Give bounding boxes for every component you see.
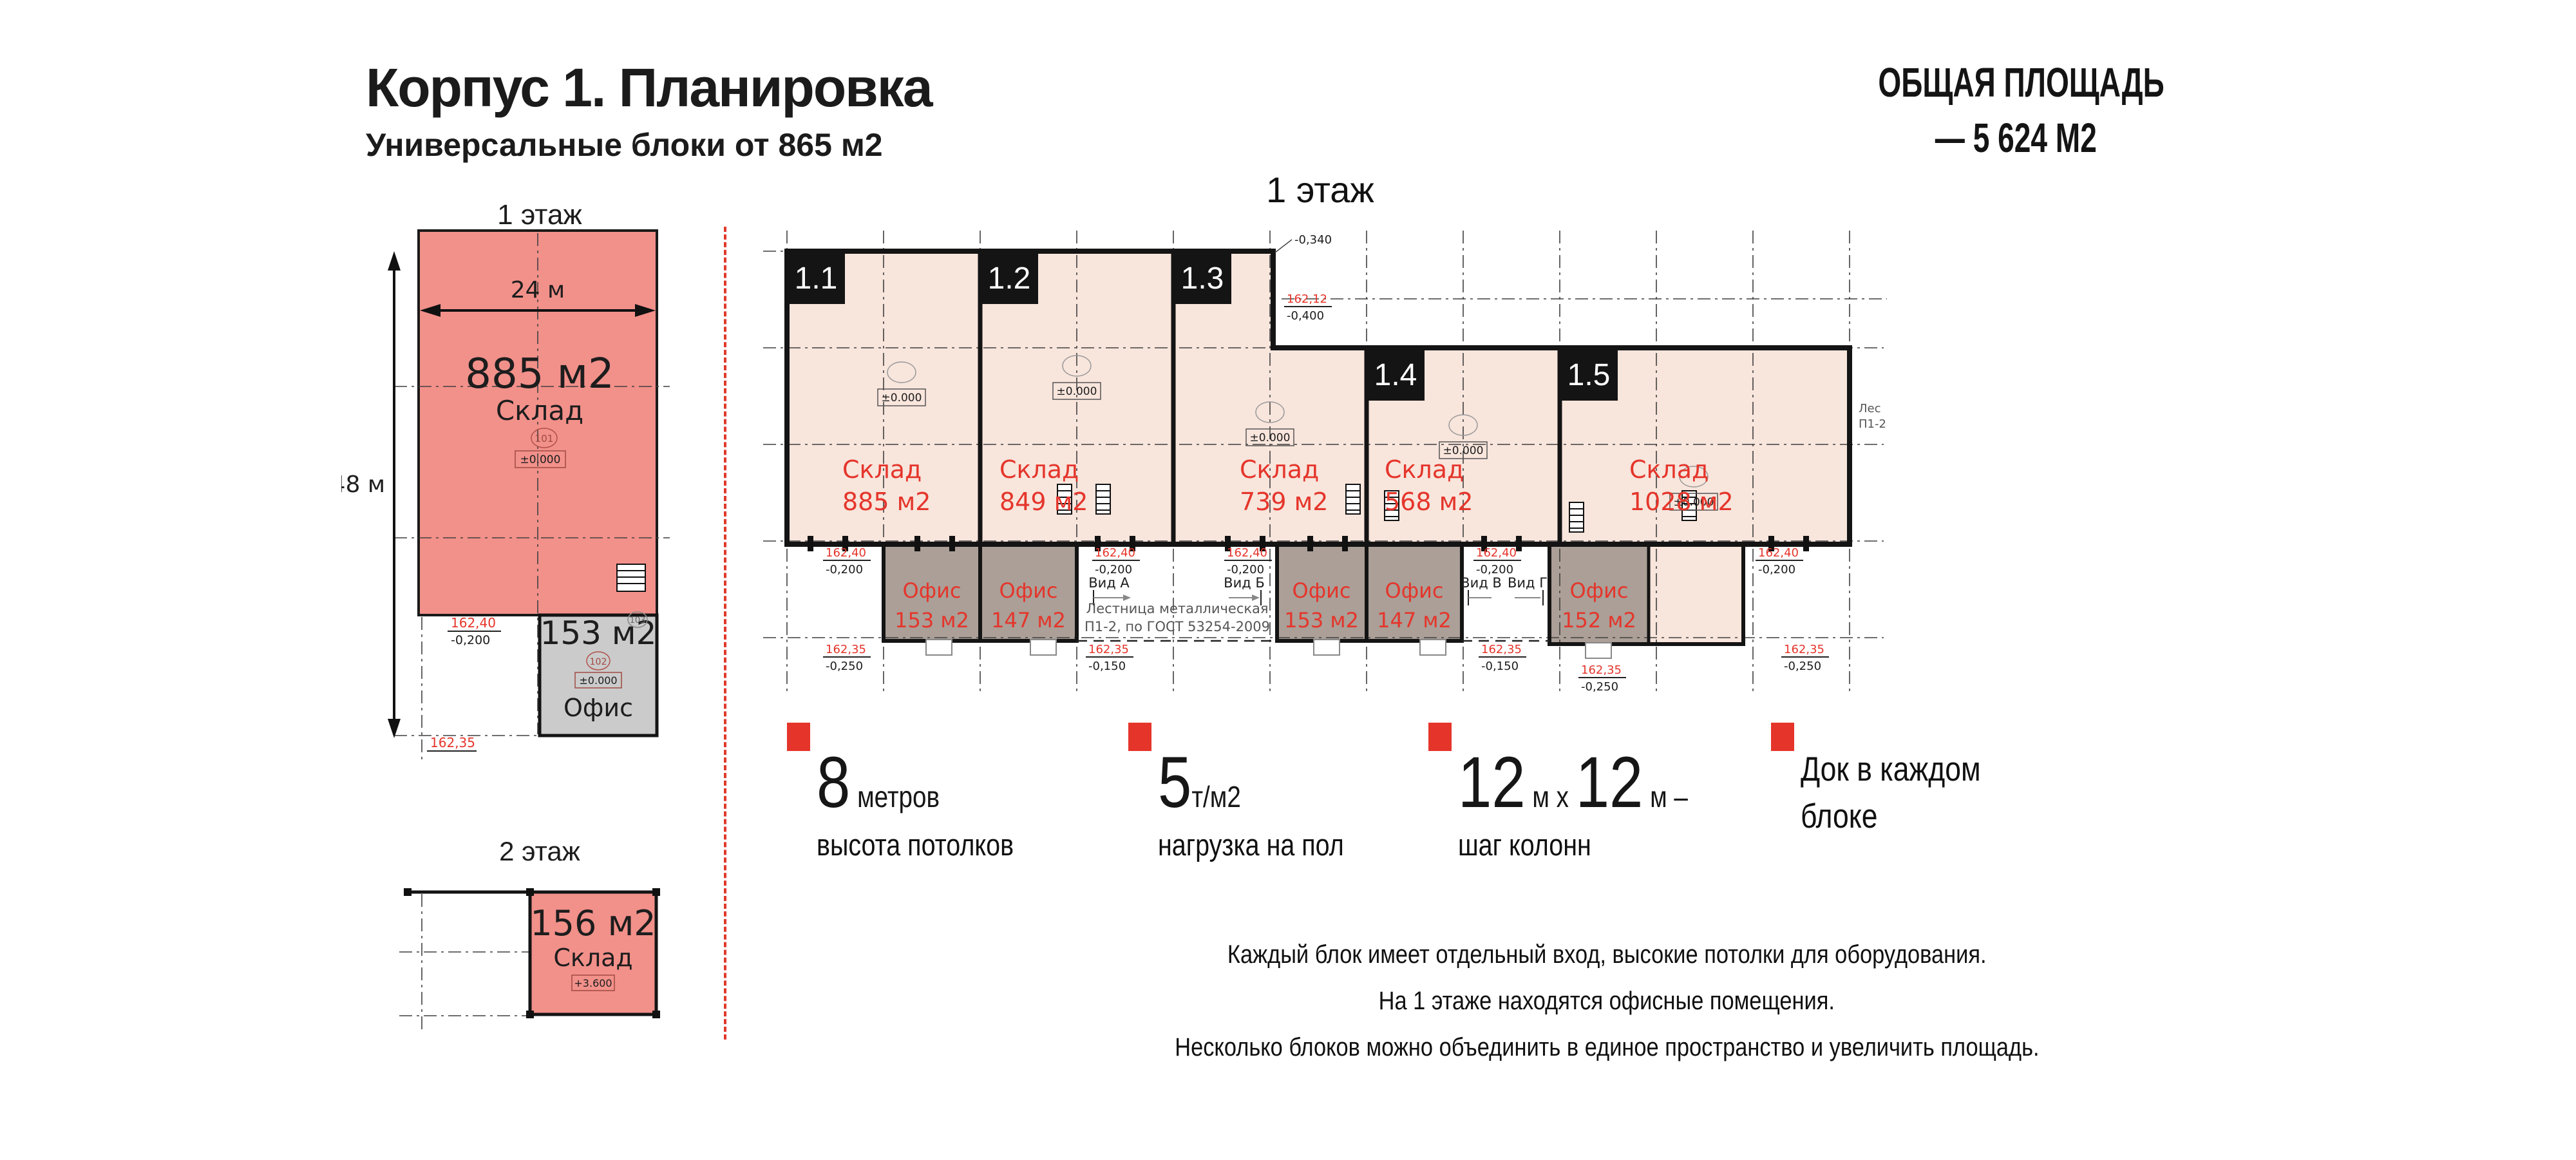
em1d: -0,200 [826, 563, 863, 576]
f2-corner-4 [652, 1011, 660, 1018]
footer-notes: Каждый блок имеет отдельный вход, высоки… [953, 935, 2260, 1074]
block13-room: Склад [1240, 455, 1319, 484]
dim-24m-label: 24 м [511, 277, 565, 303]
feature2-caption: нагрузка на пол [1158, 827, 1344, 862]
em3d: -0,200 [1227, 563, 1264, 576]
red-square-icon [787, 723, 810, 751]
f2-corner-1 [526, 888, 534, 896]
block12-area: 849 м2 [999, 488, 1088, 516]
office4-room: Офис [1385, 578, 1444, 603]
floorplan-slide: { "header": { "title": "Корпус 1. Планир… [0, 0, 2576, 1160]
em10d: -0,250 [1784, 660, 1821, 673]
em11d: -0,400 [1287, 309, 1324, 323]
total-area-caption: ОБЩАЯ ПЛОЩАДЬ [1878, 62, 2164, 103]
em4v: 162,40 [1476, 546, 1517, 560]
view-a: Вид А [1088, 575, 1130, 591]
em8v: 162,35 [1481, 643, 1522, 656]
page-subtitle: Универсальные блоки от 865 м2 [366, 126, 883, 164]
block-id-1-3: 1.3 [1181, 261, 1224, 296]
block14-area: 568 м2 [1385, 488, 1473, 516]
office4-area: 147 м2 [1377, 608, 1452, 632]
stair-note-line2: П1-2, по ГОСТ 53254-2009 [1084, 619, 1270, 634]
em5d: -0,200 [1758, 563, 1795, 576]
dim-48m-label: 48 м [341, 471, 385, 498]
block-id-1-5: 1.5 [1567, 358, 1611, 392]
block12-room: Склад [999, 455, 1079, 484]
f2-corner-2 [652, 888, 660, 896]
em1v: 162,40 [826, 546, 866, 560]
main-plan: 1.1 1.2 1.3 1.4 1.5 ±0.000 ±0.000 ±0.000… [734, 213, 1919, 708]
em10v: 162,35 [1784, 643, 1824, 656]
elev-mark-value2: 162,35 [430, 735, 475, 750]
mini-floor2-label: Склад [553, 944, 632, 972]
mini-plans: 1 этаж 24 м 48 м 885 м2 Склад 101 ±0.000… [341, 187, 728, 1063]
elev-mark-16235: 162,35 [427, 735, 477, 751]
em5v: 162,40 [1758, 546, 1799, 560]
office3-area: 153 м2 [1284, 608, 1359, 632]
red-square-icon [1428, 723, 1452, 751]
total-area: ОБЩАЯ ПЛОЩАДЬ — 5 624 М2 [1823, 62, 2209, 158]
elev-mark-value: 162,40 [451, 615, 496, 631]
room-number-103: 103 [630, 616, 646, 625]
f2-corner-3 [526, 1011, 534, 1018]
block13-area: 739 м2 [1240, 488, 1328, 516]
office3-room: Офис [1293, 578, 1351, 603]
em2v: 162,40 [1095, 546, 1135, 560]
side-note-line1: Лес [1859, 402, 1881, 415]
f2-corner-tl [404, 888, 412, 896]
elev-value-office: ±0.000 [579, 674, 617, 687]
page-title: Корпус 1. Планировка [366, 57, 932, 119]
view-b: Вид Б [1224, 575, 1265, 591]
elev-12: ±0.000 [1057, 385, 1097, 398]
block11-area: 885 м2 [842, 488, 931, 516]
view-v: Вид В [1461, 575, 1502, 591]
office2-area: 147 м2 [991, 608, 1066, 632]
feature1-caption: высота потолков [817, 827, 1014, 862]
elev-value-f2: +3.600 [574, 977, 612, 989]
feature4-line1: Док в каждом [1801, 746, 1981, 793]
office1-area: 153 м2 [895, 608, 969, 632]
mini-floor1-title: 1 этаж [497, 199, 582, 231]
view-g: Вид Г [1508, 575, 1548, 591]
room-number-102: 102 [590, 657, 607, 667]
feature4-line2: блоке [1801, 793, 1877, 840]
em8d: -0,150 [1481, 660, 1519, 673]
mark-340-text: -0,340 [1294, 233, 1332, 247]
block14-room: Склад [1385, 455, 1464, 484]
mark-minus-0340: -0,340 [1275, 233, 1332, 252]
feature2-unit: т/м2 [1191, 780, 1240, 813]
feature3-caption: шаг колонн [1458, 827, 1591, 862]
em6d: -0,250 [826, 660, 863, 673]
side-note-line2: П1-2 [1859, 417, 1886, 431]
block-id-1-4: 1.4 [1374, 358, 1417, 392]
em3v: 162,40 [1227, 546, 1267, 560]
room-number-101: 101 [535, 433, 554, 444]
feature3-number2: 12 [1576, 742, 1643, 822]
block15-room: Склад [1629, 455, 1709, 484]
footer-line3: Несколько блоков можно объединить в един… [1175, 1028, 2039, 1067]
em7d: -0,150 [1088, 660, 1126, 673]
red-square-icon [1771, 723, 1794, 751]
total-area-value: — 5 624 М2 [1935, 117, 2096, 158]
feature2-number: 5 [1158, 742, 1191, 822]
office1-room: Офис [903, 578, 961, 603]
mini-floor2-area: 156 м2 [530, 903, 656, 944]
stair-note-line1: Лестница металлическая [1086, 601, 1268, 616]
em2d: -0,200 [1095, 563, 1132, 576]
footer-line2: На 1 этаже находятся офисные помещения. [1379, 982, 1835, 1020]
feature3-unit1: м x [1526, 780, 1576, 813]
elev-mark-16240: 162,40 -0,200 [448, 615, 501, 647]
feature1-unit: метров [850, 780, 940, 813]
em6v: 162,35 [826, 643, 866, 656]
office5-room: Офис [1570, 578, 1629, 603]
mini-warehouse-label: Склад [496, 395, 583, 426]
mini-warehouse-area: 885 м2 [465, 350, 614, 398]
footer-line1: Каждый блок имеет отдельный вход, высоки… [1227, 935, 1987, 974]
elev-mark-depth: -0,200 [451, 633, 490, 647]
mini-floor2-title: 2 этаж [499, 836, 580, 866]
feature1-number: 8 [817, 742, 850, 822]
main-plan-title: 1 этаж [1243, 169, 1397, 211]
em9v: 162,35 [1581, 663, 1622, 677]
dim-48m-arrow-top [388, 251, 401, 271]
block11-room: Склад [842, 455, 922, 484]
office5-area: 152 м2 [1562, 608, 1636, 632]
em11v: 162,12 [1287, 292, 1327, 306]
block15-area: 1028 м2 [1629, 488, 1734, 516]
block-id-1-1: 1.1 [795, 261, 838, 296]
elev-13: ±0.000 [1250, 432, 1291, 444]
block-id-1-2: 1.2 [988, 261, 1031, 296]
em9d: -0,250 [1581, 680, 1618, 694]
stairs-icon [617, 564, 645, 591]
office2-room: Офис [999, 578, 1058, 603]
elev-11: ±0.000 [882, 392, 922, 404]
red-square-icon [1128, 723, 1151, 751]
section-separator-line [724, 227, 726, 1040]
feature3-unit2: м – [1643, 780, 1688, 813]
elev-value-f1: ±0.000 [520, 453, 561, 466]
feature3-number1: 12 [1458, 742, 1526, 822]
mini-office-label: Офис [563, 694, 633, 722]
em4d: -0,200 [1476, 563, 1513, 576]
em7v: 162,35 [1088, 643, 1129, 656]
